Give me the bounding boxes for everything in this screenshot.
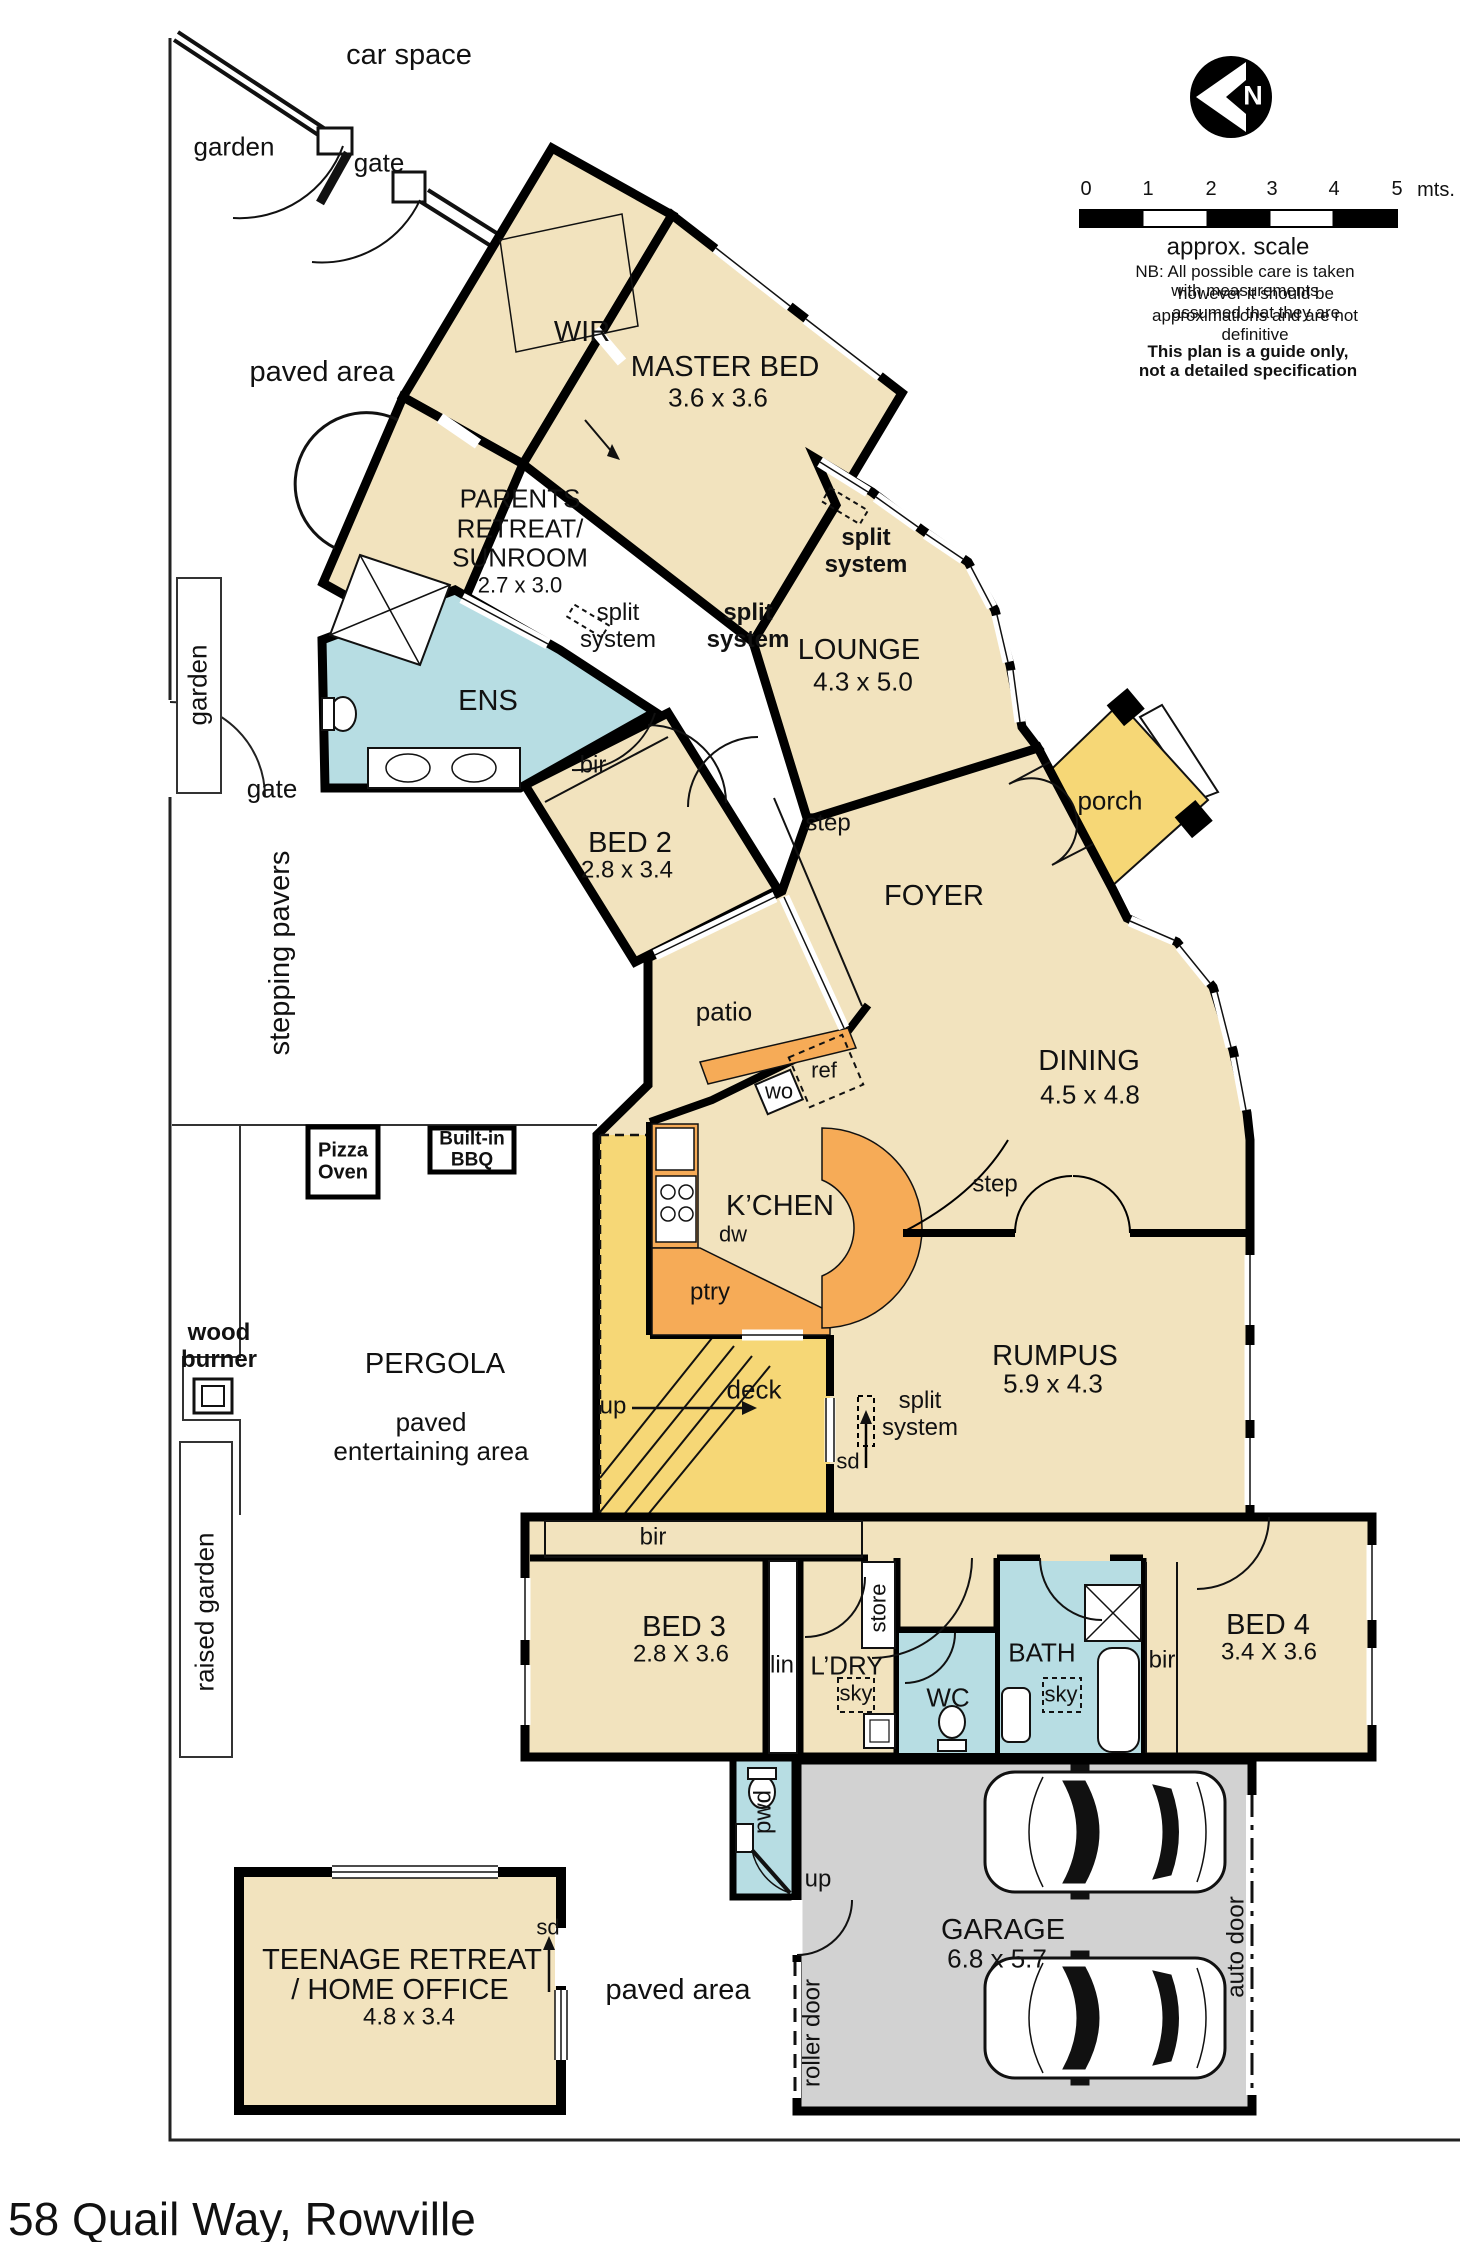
label-parents-dims: 2.7 x 3.0 — [478, 574, 562, 599]
label-garden-top: garden — [194, 132, 275, 161]
label-garage: GARAGE — [941, 1914, 1065, 1946]
label-raised-garden: raised garden — [190, 1533, 219, 1692]
label-bir-bed3: bir — [640, 1525, 667, 1552]
note-nb3: approximations and are not definitive — [1146, 306, 1364, 344]
scale-tick-2: 2 — [1205, 178, 1216, 200]
floor-plan-root: car space garden gate paved area garden … — [0, 0, 1473, 2242]
note-disclaimer: This plan is a guide only, not a detaile… — [1136, 342, 1361, 380]
label-parents-1: PARENTS — [460, 484, 581, 513]
label-split-system-3: split system — [707, 600, 790, 654]
label-ldry: L’DRY — [810, 1651, 883, 1680]
label-rumpus-dims: 5.9 x 4.3 — [1003, 1369, 1103, 1398]
label-step-1: step — [805, 811, 850, 838]
label-pizza-oven: Pizza Oven — [318, 1140, 368, 1185]
label-bed3: BED 3 — [642, 1611, 726, 1643]
label-porch: porch — [1077, 786, 1142, 815]
label-parents-3: SUNROOM — [452, 543, 588, 572]
label-lounge: LOUNGE — [798, 634, 920, 666]
label-garage-dims: 6.8 x 5.7 — [947, 1944, 1047, 1973]
label-auto-door: auto door — [1224, 1896, 1251, 1997]
label-paved-area-bottom: paved area — [605, 1974, 750, 2006]
label-lin: lin — [770, 1653, 794, 1680]
label-bed2-dims: 2.8 x 3.4 — [581, 858, 673, 885]
scale-caption: approx. scale — [1167, 235, 1310, 262]
north-letter: N — [1243, 81, 1263, 112]
scale-tick-0: 0 — [1080, 178, 1091, 200]
label-up-stairs: up — [805, 1867, 832, 1894]
label-wo: wo — [765, 1080, 793, 1105]
label-rumpus: RUMPUS — [992, 1340, 1118, 1372]
label-sky-ldry: sky — [840, 1682, 873, 1707]
label-patio: patio — [696, 997, 752, 1026]
label-ref: ref — [811, 1059, 837, 1084]
label-dining-dims: 4.5 x 4.8 — [1040, 1080, 1140, 1109]
label-wc: WC — [926, 1683, 969, 1712]
scale-tick-3: 3 — [1266, 178, 1277, 200]
label-bir-bed2: bir — [580, 753, 607, 780]
label-split-system-4: split system — [882, 1388, 958, 1442]
label-wir: WIR — [554, 316, 610, 348]
scale-unit: mts. — [1417, 179, 1455, 201]
label-foyer: FOYER — [884, 880, 984, 912]
label-paved-entertaining: paved entertaining area — [333, 1408, 528, 1466]
label-store: store — [867, 1584, 892, 1633]
label-teen-dims: 4.8 x 3.4 — [363, 2005, 455, 2032]
label-garden-left: garden — [183, 645, 212, 726]
label-dw: dw — [719, 1223, 747, 1248]
label-bed4: BED 4 — [1226, 1609, 1310, 1641]
label-up-deck: up — [600, 1394, 627, 1421]
label-lounge-dims: 4.3 x 5.0 — [813, 667, 913, 696]
label-step-2: step — [972, 1172, 1017, 1199]
label-sky-bath: sky — [1045, 1683, 1078, 1708]
label-pergola: PERGOLA — [365, 1348, 505, 1380]
scale-tick-1: 1 — [1142, 178, 1153, 200]
label-ptry: ptry — [690, 1280, 730, 1307]
label-master-bed: MASTER BED — [631, 351, 820, 383]
label-gate-top: gate — [354, 148, 405, 177]
label-bed2: BED 2 — [588, 827, 672, 859]
wood-burner-icon — [194, 1379, 232, 1413]
label-deck: deck — [727, 1375, 782, 1404]
label-paved-area-top: paved area — [249, 356, 394, 388]
label-dining: DINING — [1038, 1045, 1140, 1077]
label-bed4-dims: 3.4 X 3.6 — [1221, 1640, 1317, 1667]
label-stepping-pavers: stepping pavers — [264, 851, 296, 1056]
label-sd-teen: sd — [536, 1916, 559, 1941]
label-built-in-bbq: Built-in BBQ — [439, 1129, 504, 1172]
address-title: 58 Quail Way, Rowville — [8, 2192, 476, 2242]
label-teen-1: TEENAGE RETREAT — [262, 1944, 542, 1976]
scale-bar — [1080, 210, 1397, 227]
label-roller-door: roller door — [800, 1979, 827, 2087]
label-parents-2: RETREAT/ — [457, 514, 584, 543]
label-pwd: pwd — [751, 1790, 778, 1834]
label-bed3-dims: 2.8 X 3.6 — [633, 1642, 729, 1669]
label-bir-bed4: bir — [1149, 1648, 1176, 1675]
label-sd-deck: sd — [836, 1450, 859, 1475]
label-bath: BATH — [1008, 1638, 1075, 1667]
scale-tick-4: 4 — [1328, 178, 1339, 200]
label-gate-left: gate — [247, 774, 298, 803]
label-wood-burner: wood burner — [181, 1320, 257, 1374]
label-car-space: car space — [346, 39, 472, 71]
label-split-system-1: split system — [825, 525, 908, 579]
label-kitchen: K’CHEN — [726, 1190, 834, 1222]
label-master-dims: 3.6 x 3.6 — [668, 383, 768, 412]
scale-tick-5: 5 — [1391, 178, 1402, 200]
label-teen-2: / HOME OFFICE — [291, 1974, 509, 2006]
label-ens: ENS — [458, 685, 518, 717]
label-split-system-2: split system — [580, 600, 656, 654]
